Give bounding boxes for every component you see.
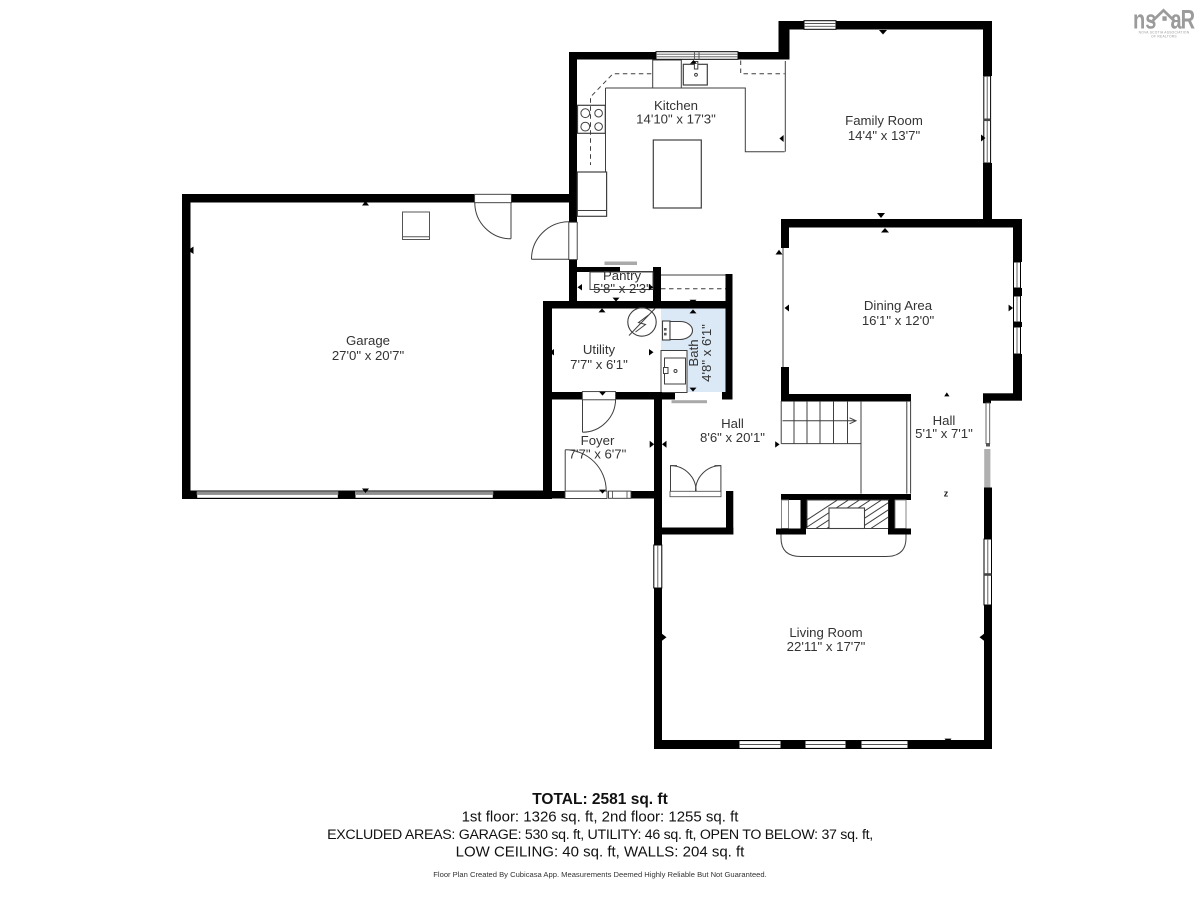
svg-text:EXCLUDED AREAS: GARAGE: 530 sq: EXCLUDED AREAS: GARAGE: 530 sq. ft, UTIL… bbox=[327, 827, 873, 843]
svg-text:Garage: Garage bbox=[346, 333, 390, 348]
svg-text:OF REALTORS: OF REALTORS bbox=[1151, 35, 1177, 39]
svg-text:Floor Plan Created By Cubicasa: Floor Plan Created By Cubicasa App. Meas… bbox=[433, 870, 766, 879]
svg-text:5'8" x 2'3": 5'8" x 2'3" bbox=[593, 281, 651, 296]
svg-text:14'4" x 13'7": 14'4" x 13'7" bbox=[848, 128, 921, 143]
svg-text:TOTAL: 2581 sq. ft: TOTAL: 2581 sq. ft bbox=[532, 791, 668, 808]
svg-text:16'1" x 12'0": 16'1" x 12'0" bbox=[862, 313, 935, 328]
svg-text:4'8" x 6'1": 4'8" x 6'1" bbox=[699, 324, 714, 382]
svg-text:LOW CEILING: 40 sq. ft, WALLS:: LOW CEILING: 40 sq. ft, WALLS: 204 sq. f… bbox=[456, 844, 746, 861]
svg-text:8'6" x 20'1": 8'6" x 20'1" bbox=[700, 430, 765, 445]
svg-text:1st floor: 1326 sq. ft, 2nd fl: 1st floor: 1326 sq. ft, 2nd floor: 1255 … bbox=[462, 809, 740, 826]
svg-text:Living Room: Living Room bbox=[789, 625, 862, 640]
svg-text:NOVA SCOTIA ASSOCIATION: NOVA SCOTIA ASSOCIATION bbox=[1139, 30, 1190, 34]
svg-text:14'10" x 17'3": 14'10" x 17'3" bbox=[636, 112, 716, 127]
svg-text:5'1" x 7'1": 5'1" x 7'1" bbox=[915, 426, 973, 441]
svg-text:Hall: Hall bbox=[721, 416, 744, 431]
svg-text:7'7" x 6'1": 7'7" x 6'1" bbox=[570, 357, 628, 372]
svg-text:22'11" x 17'7": 22'11" x 17'7" bbox=[787, 639, 866, 654]
svg-text:z: z bbox=[944, 489, 949, 499]
svg-text:Family Room: Family Room bbox=[845, 113, 923, 128]
svg-text:Utility: Utility bbox=[583, 342, 616, 357]
svg-text:7'7" x 6'7": 7'7" x 6'7" bbox=[569, 447, 627, 462]
svg-text:Dining Area: Dining Area bbox=[864, 298, 933, 313]
svg-text:27'0" x 20'7": 27'0" x 20'7" bbox=[332, 348, 405, 363]
